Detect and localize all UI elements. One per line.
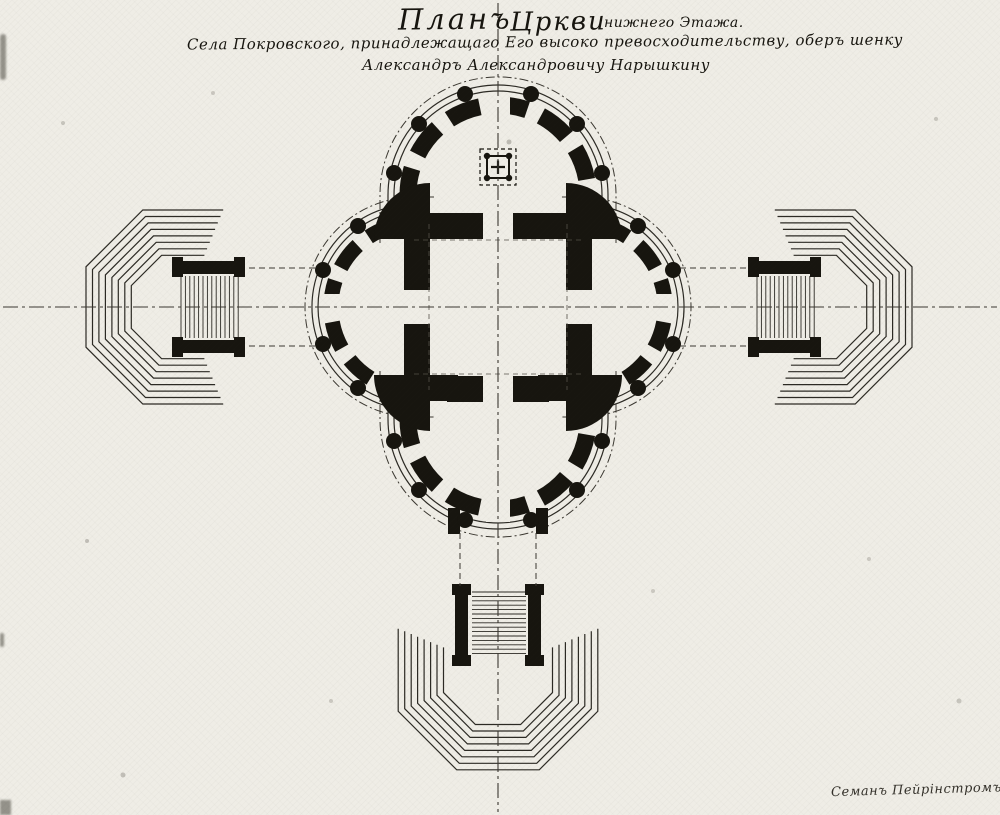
title-word-plan: Планъ bbox=[398, 1, 513, 36]
title-owner-name: Александръ Александровичу Нарышкину bbox=[362, 56, 710, 74]
scanned-drawing-page: { "title": { "word1": "Планъ", "word2": … bbox=[0, 0, 1000, 815]
church-floor-plan-drawing bbox=[0, 0, 1000, 815]
south-porch-steps bbox=[472, 592, 526, 654]
axis-centerlines bbox=[3, 3, 997, 812]
title-floor-note: нижнего Этажа. bbox=[604, 15, 744, 31]
